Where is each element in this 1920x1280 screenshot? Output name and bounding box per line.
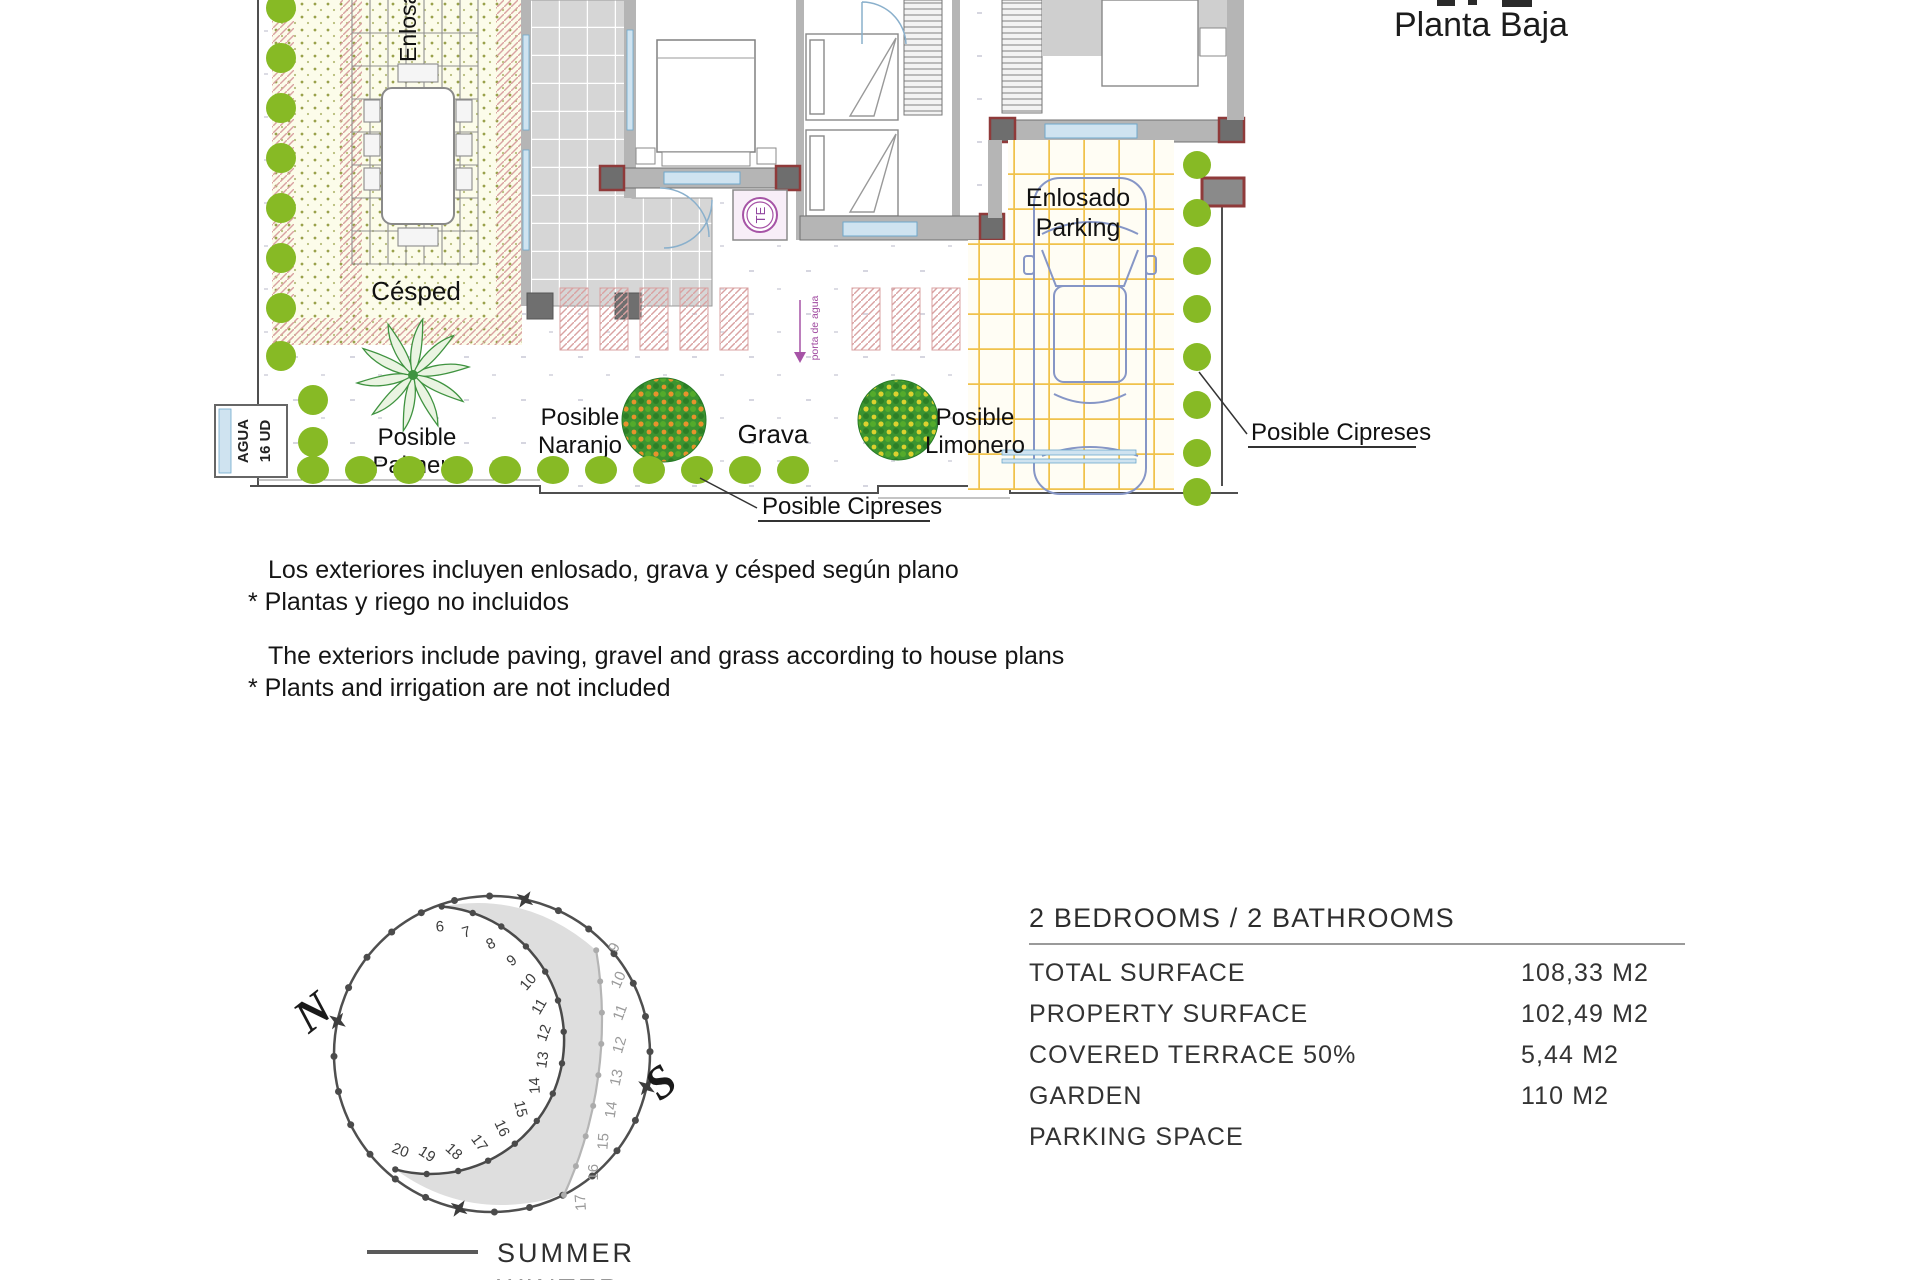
cypress-shrub xyxy=(266,93,296,123)
cypress-shrub xyxy=(1183,439,1211,467)
furniture-small xyxy=(1200,28,1226,56)
agua-strip xyxy=(219,409,231,473)
cypress-shrub xyxy=(1183,343,1211,371)
spec-label: COVERED TERRACE 50% xyxy=(1029,1041,1356,1070)
cypress-shrub xyxy=(1183,151,1211,179)
winter-hour-label: 14 xyxy=(602,1100,621,1119)
spec-value: 102,49 M2 xyxy=(1521,1000,1649,1029)
window xyxy=(664,172,740,184)
north-label: N xyxy=(283,980,343,1042)
circle-dot xyxy=(345,984,352,991)
circle-dot xyxy=(642,1013,649,1020)
wall xyxy=(796,0,804,240)
cypress-shrub xyxy=(1183,247,1211,275)
winter-hour-dot xyxy=(583,1133,589,1139)
cypress-shrub xyxy=(1183,391,1211,419)
winter-hour-dot xyxy=(599,1010,605,1016)
porch-column xyxy=(527,293,553,319)
cypress-shrub xyxy=(777,456,809,484)
summer-hour-label: 19 xyxy=(415,1143,438,1166)
window xyxy=(843,222,917,236)
cypress-shrub xyxy=(1183,199,1211,227)
winter-hour-dot xyxy=(590,1103,596,1109)
note-es-line2: * Plantas y riego no incluidos xyxy=(248,588,569,617)
palmera-label-line1: Posible xyxy=(378,424,457,451)
circle-dot xyxy=(392,1176,399,1183)
paver xyxy=(932,288,960,350)
summer-hour-dot xyxy=(542,968,548,974)
winter-hour-label: 12 xyxy=(609,1035,630,1056)
cypress-shrub xyxy=(681,456,713,484)
winter-hour-dot xyxy=(573,1163,579,1169)
wall-corner xyxy=(776,166,800,190)
spec-value: 5,44 M2 xyxy=(1521,1041,1619,1070)
circle-dot xyxy=(526,1204,533,1211)
page: { "title": { "text": "Planta Baja" }, "p… xyxy=(0,0,1920,1280)
label-underline xyxy=(1248,446,1416,448)
summer-hour-dot xyxy=(424,1171,430,1177)
paver xyxy=(680,288,708,350)
circle-dot xyxy=(555,907,562,914)
cypress-shrub xyxy=(537,456,569,484)
winter-hour-dot xyxy=(597,978,603,984)
summer-hour-label: 20 xyxy=(389,1140,411,1162)
circle-dot xyxy=(347,1121,354,1128)
winter-hour-label: 16 xyxy=(585,1164,602,1181)
garden-table xyxy=(382,88,454,224)
winter-hour-dot xyxy=(561,1192,567,1198)
pillar xyxy=(1202,178,1244,206)
cypress-shrub xyxy=(729,456,761,484)
spec-label: TOTAL SURFACE xyxy=(1029,959,1246,988)
circle-dot xyxy=(647,1048,654,1055)
spec-row: PROPERTY SURFACE102,49 M2 xyxy=(1029,1000,1689,1041)
double-bed xyxy=(657,40,755,152)
details-panel: 2 BEDROOMS / 2 BATHROOMS TOTAL SURFACE10… xyxy=(1029,903,1689,1164)
te-label: TE xyxy=(753,206,768,223)
spec-label: GARDEN xyxy=(1029,1082,1143,1111)
agua-box: AGUA 16 UD xyxy=(215,405,287,477)
note-es-line1: Los exteriores incluyen enlosado, grava … xyxy=(268,556,959,585)
bed-pillow xyxy=(810,40,824,114)
summer-hour-dot xyxy=(470,910,476,916)
circle-dot xyxy=(364,954,371,961)
paver xyxy=(892,288,920,350)
summer-hour-label: 14 xyxy=(526,1077,544,1095)
summer-hour-dot xyxy=(485,1158,491,1164)
cipreses-bottom-label: Posible Cipreses xyxy=(762,493,942,520)
circle-dot xyxy=(614,1147,621,1154)
hatch-border xyxy=(340,0,362,318)
summer-hour-dot xyxy=(534,1118,540,1124)
paver xyxy=(852,288,880,350)
spec-row: PARKING SPACE xyxy=(1029,1123,1689,1164)
summer-hour-dot xyxy=(455,1168,461,1174)
naranjo-label-line1: Posible xyxy=(541,404,620,431)
wardrobe xyxy=(904,0,942,115)
limonero-label-line1: Posible xyxy=(936,404,1015,431)
cypress-shrub xyxy=(1183,478,1211,506)
cipreses-right-label: Posible Cipreses xyxy=(1251,419,1431,446)
furniture xyxy=(1102,0,1198,86)
summer-hour-dot xyxy=(555,997,561,1003)
spec-value: 108,33 M2 xyxy=(1521,959,1649,988)
winter-hour-dot xyxy=(598,1041,604,1047)
sun-legend: SUMMER WINTER xyxy=(367,1238,635,1280)
cipreses-annotation-right: Posible Cipreses xyxy=(1199,372,1431,448)
wall-corner xyxy=(1219,118,1244,142)
label-underline xyxy=(758,520,930,522)
te-panel: TE xyxy=(733,190,787,240)
circle-dot xyxy=(630,980,637,987)
summer-hour-label: 12 xyxy=(534,1022,556,1043)
winter-hour-label: 11 xyxy=(610,1002,631,1022)
cypress-shrub xyxy=(266,293,296,323)
circle-dot xyxy=(422,1194,429,1201)
cypress-shrub xyxy=(298,385,328,415)
cypress-shrub xyxy=(266,243,296,273)
note-en-line1: The exteriors include paving, gravel and… xyxy=(268,642,1064,671)
window xyxy=(1045,124,1137,138)
spec-value: 110 M2 xyxy=(1521,1082,1609,1111)
summer-hour-label: 6 xyxy=(435,918,445,936)
nightstand xyxy=(636,148,655,164)
wall xyxy=(1227,0,1244,120)
winter-hour-label: 15 xyxy=(594,1132,612,1150)
naranjo-label-line2: Naranjo xyxy=(538,432,622,459)
summer-hour-label: 9 xyxy=(503,952,520,971)
water-note-label: porta de agua xyxy=(809,295,821,360)
circle-dot xyxy=(418,909,425,916)
summer-hour-dot xyxy=(523,943,529,949)
summer-hour-dot xyxy=(392,1166,398,1172)
wall xyxy=(988,140,1002,218)
circle-dot xyxy=(335,1088,342,1095)
orange-tree-icon xyxy=(622,378,706,462)
spec-row: TOTAL SURFACE108,33 M2 xyxy=(1029,959,1689,1000)
summer-hour-label: 18 xyxy=(442,1140,466,1164)
limonero-label-line2: Limonero xyxy=(925,432,1025,459)
summer-hour-label: 7 xyxy=(460,923,473,942)
cypress-shrub xyxy=(585,456,617,484)
bed-bench xyxy=(662,152,750,166)
sun-path-diagram: 6789101112131415161718192091011121314151… xyxy=(283,886,686,1280)
paver xyxy=(720,288,748,350)
paver xyxy=(640,288,668,350)
cypress-shrub xyxy=(633,456,665,484)
winter-hour-label: 17 xyxy=(572,1194,590,1212)
cypress-shrub xyxy=(266,143,296,173)
summer-hour-label: 16 xyxy=(491,1117,513,1139)
bed-pillow xyxy=(810,136,824,210)
page-title: Planta Baja xyxy=(1394,6,1568,45)
window xyxy=(627,30,633,130)
cypress-shrub xyxy=(1183,295,1211,323)
spec-row: GARDEN110 M2 xyxy=(1029,1082,1689,1123)
cypress-shrub xyxy=(393,456,425,484)
cypress-shrub xyxy=(345,456,377,484)
note-en-line2: * Plants and irrigation are not included xyxy=(248,674,671,703)
cypress-shrub xyxy=(489,456,521,484)
parking-label-line1: Enlosado xyxy=(1026,184,1130,212)
window xyxy=(523,35,529,130)
circle-dot xyxy=(331,1053,338,1060)
summer-hour-dot xyxy=(498,923,504,929)
circle-dot xyxy=(632,1117,639,1124)
wall xyxy=(952,0,960,240)
circle-dot xyxy=(585,926,592,933)
summer-hour-label: 15 xyxy=(510,1099,531,1119)
winter-hour-dot xyxy=(595,1072,601,1078)
details-rows: TOTAL SURFACE108,33 M2PROPERTY SURFACE10… xyxy=(1029,959,1689,1164)
cesped-label: Césped xyxy=(371,276,461,306)
gate-line xyxy=(1002,459,1136,463)
wall-corner xyxy=(990,118,1015,142)
summer-hour-dot xyxy=(559,1060,565,1066)
circle-dot xyxy=(451,897,458,904)
winter-hour-label: 13 xyxy=(607,1068,627,1088)
circle-dot xyxy=(486,893,493,900)
site-plan: Enlosado Césped xyxy=(215,0,1431,522)
grava-label: Grava xyxy=(738,419,809,449)
cropped-text-fragment xyxy=(1468,0,1477,5)
wall-corner xyxy=(600,166,624,190)
cypress-shrub xyxy=(266,193,296,223)
paver xyxy=(600,288,628,350)
winter-hour-dot xyxy=(593,947,599,953)
circle-dot xyxy=(388,929,395,936)
summer-hour-label: 8 xyxy=(483,934,498,953)
summer-hour-label: 10 xyxy=(516,970,540,994)
spec-label: PROPERTY SURFACE xyxy=(1029,1000,1308,1029)
paver xyxy=(560,288,588,350)
hatch-border xyxy=(496,0,522,345)
striped-walkway xyxy=(1002,0,1042,113)
window xyxy=(523,150,529,250)
circle-dot xyxy=(367,1151,374,1158)
details-heading: 2 BEDROOMS / 2 BATHROOMS xyxy=(1029,903,1689,934)
summer-hour-label: 11 xyxy=(528,996,551,1018)
summer-hour-dot xyxy=(550,1090,556,1096)
summer-hour-label: 17 xyxy=(467,1131,491,1154)
cypress-shrub xyxy=(266,43,296,73)
details-underline xyxy=(1029,943,1685,945)
winter-hour-label: 9 xyxy=(605,940,624,955)
cypress-shrub xyxy=(298,427,328,457)
spec-label: PARKING SPACE xyxy=(1029,1123,1244,1152)
cypress-shrub xyxy=(297,456,329,484)
cypress-shrub xyxy=(441,456,473,484)
winter-legend-label: WINTER xyxy=(497,1274,621,1280)
summer-legend-label: SUMMER xyxy=(497,1238,635,1268)
summer-hour-dot xyxy=(512,1141,518,1147)
enlosado-vertical-label: Enlosado xyxy=(395,0,421,62)
circle-dot xyxy=(491,1209,498,1216)
summer-hour-dot xyxy=(561,1029,567,1035)
parking-label-line2: Parking xyxy=(1036,214,1121,242)
agua-label-line2: 16 UD xyxy=(257,420,274,463)
nightstand xyxy=(757,148,776,164)
summer-hour-label: 13 xyxy=(533,1050,552,1069)
summer-hour-dot xyxy=(439,903,445,909)
cypress-shrub xyxy=(266,341,296,371)
spec-row: COVERED TERRACE 50%5,44 M2 xyxy=(1029,1041,1689,1082)
agua-label-line1: AGUA xyxy=(235,419,252,463)
